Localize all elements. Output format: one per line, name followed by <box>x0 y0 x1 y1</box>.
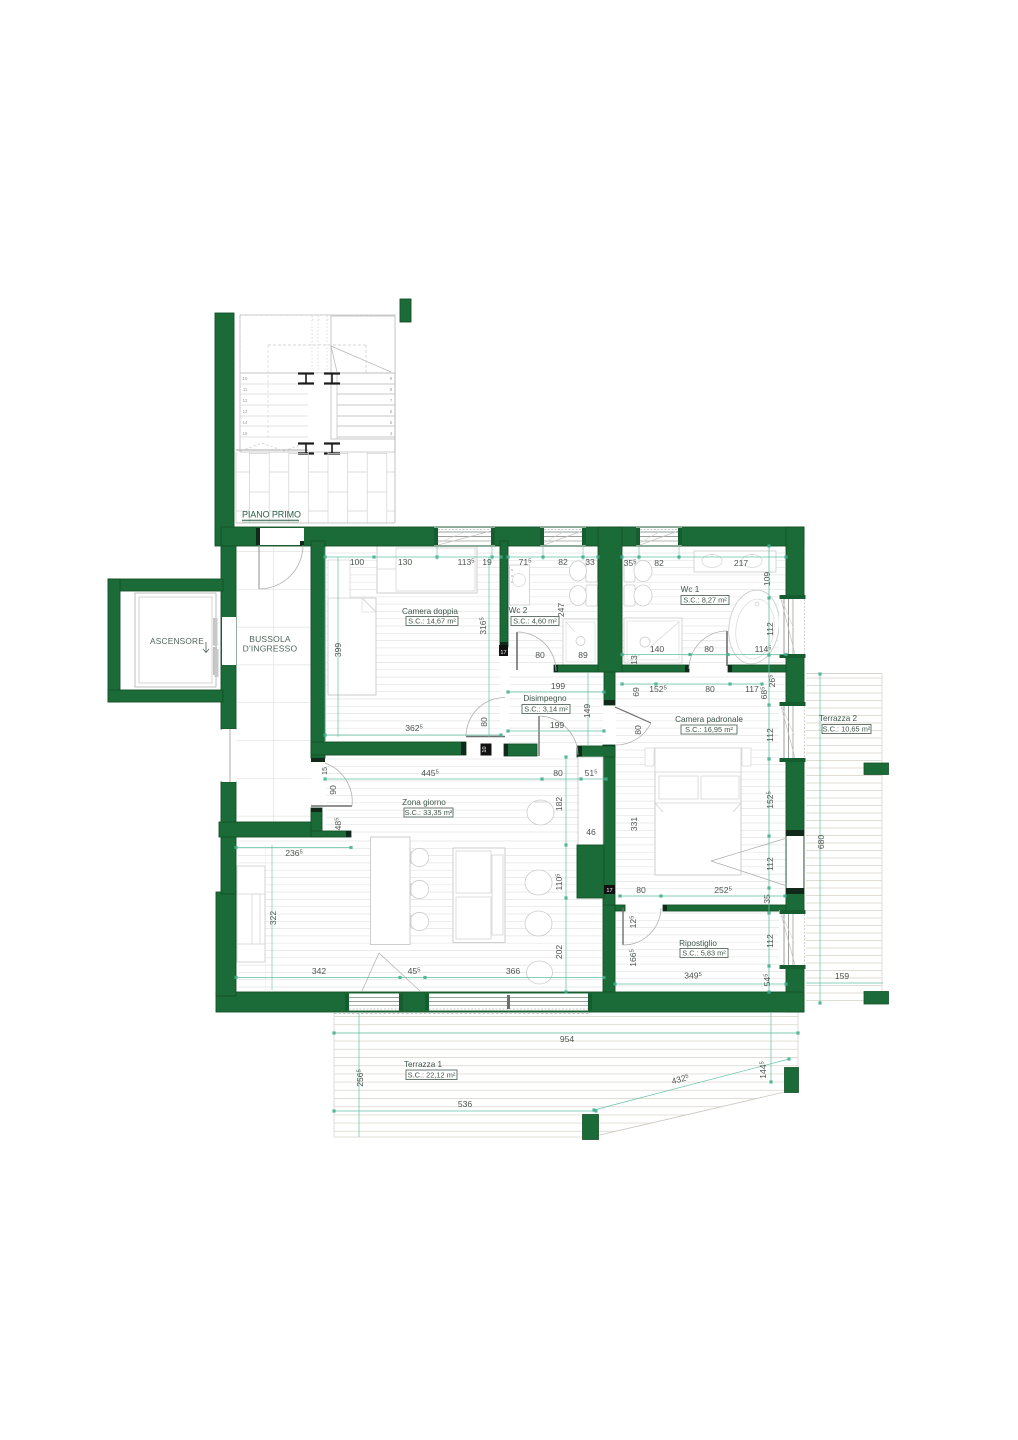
svg-text:S.C.: 33,35 m²: S.C.: 33,35 m² <box>405 808 453 817</box>
svg-text:202: 202 <box>554 945 564 960</box>
svg-text:Wc 2: Wc 2 <box>509 606 528 615</box>
svg-text:33: 33 <box>585 557 595 567</box>
svg-text:Terrazza 1: Terrazza 1 <box>404 1060 443 1069</box>
svg-text:13: 13 <box>629 655 639 665</box>
svg-text:90: 90 <box>328 785 338 795</box>
svg-text:112: 112 <box>765 857 775 871</box>
svg-text:80: 80 <box>535 650 545 660</box>
svg-text:S.C.: 10,65 m²: S.C.: 10,65 m² <box>823 724 871 733</box>
svg-text:S.C.: 4,60 m²: S.C.: 4,60 m² <box>513 616 557 625</box>
svg-text:13: 13 <box>243 409 248 414</box>
svg-text:112: 112 <box>765 934 775 948</box>
svg-text:80: 80 <box>704 644 714 654</box>
svg-text:954: 954 <box>560 1034 575 1044</box>
svg-text:80: 80 <box>553 768 563 778</box>
svg-text:10: 10 <box>243 376 248 381</box>
svg-text:322: 322 <box>268 911 278 926</box>
svg-text:100: 100 <box>350 557 365 567</box>
svg-text:109: 109 <box>762 572 772 587</box>
svg-text:366: 366 <box>506 966 521 976</box>
svg-text:15: 15 <box>320 767 329 775</box>
svg-text:82: 82 <box>558 557 568 567</box>
svg-text:80: 80 <box>479 717 489 727</box>
svg-text:Terrazza 2: Terrazza 2 <box>819 714 858 723</box>
svg-text:80: 80 <box>633 725 643 735</box>
svg-text:112: 112 <box>765 622 775 636</box>
svg-text:12: 12 <box>243 398 248 403</box>
svg-text:536: 536 <box>458 1099 473 1109</box>
svg-text:69: 69 <box>631 687 641 697</box>
svg-text:112: 112 <box>765 728 775 742</box>
svg-text:Zona giorno: Zona giorno <box>402 798 446 807</box>
svg-text:217: 217 <box>734 558 749 568</box>
svg-text:159: 159 <box>835 971 850 981</box>
svg-text:80: 80 <box>636 885 646 895</box>
svg-text:199: 199 <box>551 681 566 691</box>
svg-text:S.C.: 14,67 m²: S.C.: 14,67 m² <box>408 616 456 625</box>
svg-text:89: 89 <box>578 650 588 660</box>
svg-text:19: 19 <box>482 557 492 567</box>
svg-text:14: 14 <box>243 420 248 425</box>
svg-text:S.C.: 3,14 m²: S.C.: 3,14 m² <box>524 704 568 713</box>
svg-text:140: 140 <box>650 644 665 654</box>
svg-text:130: 130 <box>398 557 413 567</box>
svg-text:S.C.: 8,27 m²: S.C.: 8,27 m² <box>683 595 727 604</box>
svg-text:Camera doppia: Camera doppia <box>402 607 458 616</box>
svg-text:331: 331 <box>629 817 639 832</box>
svg-text:PIANO PRIMO: PIANO PRIMO <box>242 510 301 520</box>
svg-text:D'INGRESSO: D'INGRESSO <box>243 644 298 654</box>
svg-text:399: 399 <box>333 643 343 658</box>
svg-text:11: 11 <box>243 387 248 392</box>
svg-text:S.C.: 22,12 m²: S.C.: 22,12 m² <box>408 1070 456 1079</box>
svg-text:117: 117 <box>745 684 759 694</box>
svg-text:S.C.: 16,95 m²: S.C.: 16,95 m² <box>685 725 733 734</box>
svg-text:Disimpegno: Disimpegno <box>523 694 567 703</box>
svg-text:S.C.: 5,83 m²: S.C.: 5,83 m² <box>682 948 726 957</box>
svg-text:17: 17 <box>606 888 612 894</box>
svg-text:ASCENSORE: ASCENSORE <box>150 636 204 646</box>
svg-text:680: 680 <box>816 835 826 850</box>
svg-text:BUSSOLA: BUSSOLA <box>249 634 291 644</box>
svg-text:199: 199 <box>550 720 565 730</box>
svg-text:82: 82 <box>654 558 664 568</box>
svg-text:342: 342 <box>312 966 327 976</box>
svg-text:Camera padronale: Camera padronale <box>675 715 743 724</box>
svg-text:46: 46 <box>586 827 596 837</box>
svg-text:Ripostiglio: Ripostiglio <box>679 939 717 948</box>
svg-text:17: 17 <box>500 650 506 656</box>
svg-text:80: 80 <box>705 684 715 694</box>
svg-text:247: 247 <box>556 603 566 618</box>
svg-text:182: 182 <box>554 797 564 812</box>
svg-text:149: 149 <box>582 704 592 719</box>
svg-text:35: 35 <box>762 894 772 904</box>
svg-text:15: 15 <box>243 431 248 436</box>
svg-text:Wc 1: Wc 1 <box>681 585 700 594</box>
svg-text:10: 10 <box>482 746 488 752</box>
